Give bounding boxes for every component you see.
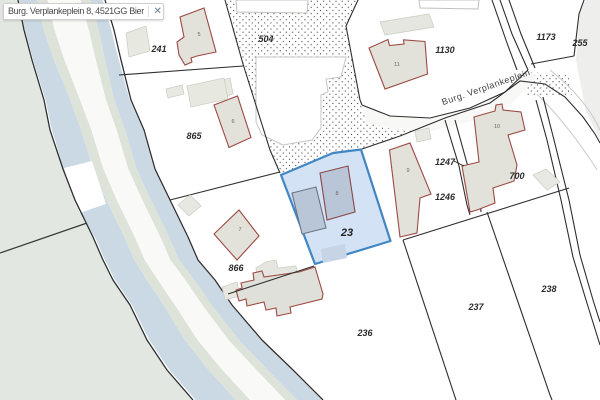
svg-text:1247: 1247 <box>435 157 456 167</box>
svg-text:255: 255 <box>571 38 588 48</box>
svg-text:1130: 1130 <box>435 45 454 55</box>
svg-text:865: 865 <box>186 131 202 141</box>
svg-text:23: 23 <box>340 227 353 239</box>
svg-text:241: 241 <box>150 44 166 54</box>
svg-text:7: 7 <box>238 227 241 233</box>
svg-text:1246: 1246 <box>435 192 456 202</box>
svg-text:866: 866 <box>228 263 244 273</box>
svg-text:700: 700 <box>509 171 524 181</box>
svg-text:9: 9 <box>406 168 409 174</box>
svg-text:1173: 1173 <box>536 32 555 42</box>
svg-text:504: 504 <box>258 34 273 44</box>
svg-text:236: 236 <box>356 328 373 338</box>
svg-text:238: 238 <box>540 284 556 294</box>
svg-text:237: 237 <box>467 302 484 312</box>
svg-text:6: 6 <box>231 119 234 125</box>
svg-text:5: 5 <box>197 32 200 38</box>
svg-text:8: 8 <box>335 191 338 197</box>
svg-text:10: 10 <box>494 124 500 130</box>
svg-text:11: 11 <box>394 62 400 68</box>
